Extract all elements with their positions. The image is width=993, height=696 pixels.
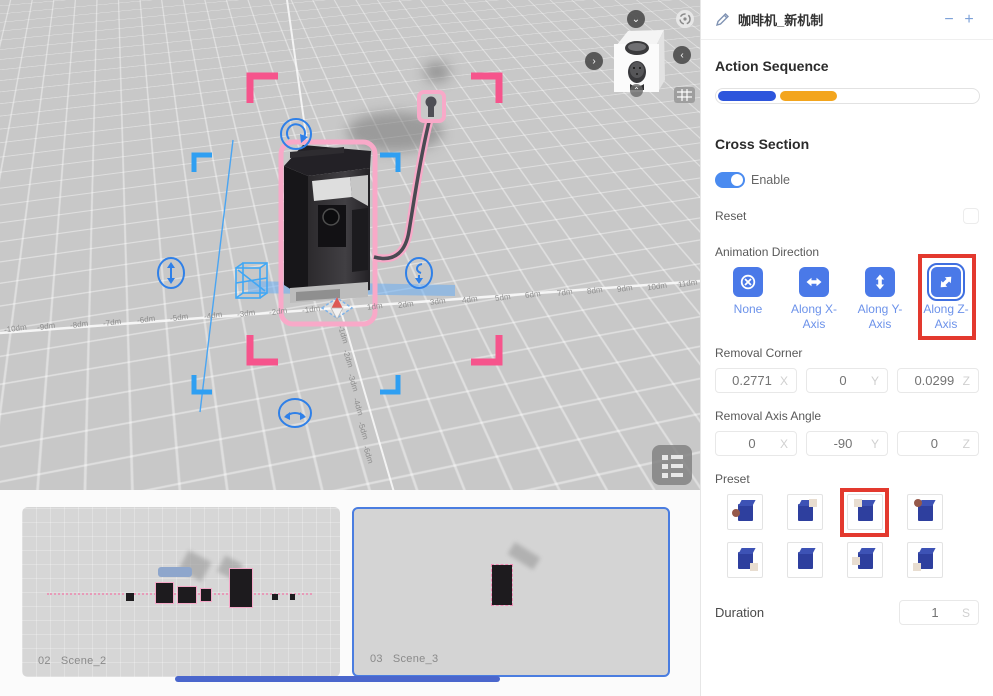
toggle-knob	[731, 174, 743, 186]
duration-label: Duration	[715, 605, 764, 620]
viewport-overlay	[0, 0, 700, 490]
view-reset-icon[interactable]	[676, 10, 694, 28]
orbit-horizontal-gizmo[interactable]	[279, 399, 311, 427]
view-cube[interactable]	[614, 30, 665, 92]
anim-option-along-y[interactable]: Along Y-Axis	[847, 267, 913, 332]
animation-direction-options: None Along X-Axis Along Y-Axis	[715, 267, 979, 332]
preset-option-8[interactable]	[907, 542, 943, 578]
scene-card-label: 03Scene_3	[370, 653, 448, 665]
scene-name: Scene_3	[393, 653, 439, 665]
preset-option-7[interactable]	[847, 542, 883, 578]
preset-grid	[727, 494, 979, 578]
reset-label: Reset	[715, 209, 746, 223]
action-sequence-heading: Action Sequence	[715, 58, 979, 74]
duration-value: 1	[908, 605, 962, 620]
preset-option-1[interactable]	[727, 494, 763, 530]
scene-index: 03	[370, 653, 383, 665]
table-view-icon[interactable]	[674, 87, 695, 103]
diagonal-double-arrow-icon	[931, 267, 961, 297]
horizontal-double-arrow-icon	[799, 267, 829, 297]
axis-rotate-gizmo[interactable]	[406, 258, 432, 288]
scene2-shadow	[178, 550, 211, 582]
edit-pencil-icon[interactable]	[715, 12, 730, 27]
preset-cube-icon	[858, 552, 873, 569]
panel-header: 咖啡机_新机制 − +	[701, 0, 993, 40]
anim-option-none[interactable]: None	[715, 267, 781, 332]
action-sequence-bar[interactable]	[715, 88, 980, 104]
properties-panel: 咖啡机_新机制 − + Action Sequence Cross Sectio…	[700, 0, 993, 696]
value: 0	[906, 436, 963, 451]
scene3-shadow	[508, 542, 541, 570]
vertical-double-arrow-icon	[865, 267, 895, 297]
preset-cube-icon	[738, 504, 753, 521]
left-column: -10dm -9dm -8dm -7dm -6dm -5dm -4dm -3dm…	[0, 0, 700, 696]
preset-cube-icon	[798, 552, 813, 569]
scene2-object	[126, 593, 134, 601]
cross-section-heading: Cross Section	[715, 136, 979, 152]
scene3-object	[492, 565, 512, 605]
anim-option-along-z[interactable]: Along Z-Axis	[913, 267, 979, 332]
axis-letter: Z	[963, 437, 970, 451]
coffee-machine-model[interactable]	[284, 145, 371, 303]
value: 0	[724, 436, 780, 451]
preset-label: Preset	[715, 472, 979, 486]
preset-option-3[interactable]	[847, 494, 883, 530]
removal-corner-z-input[interactable]: 0.0299 Z	[897, 368, 979, 393]
anim-option-label: Along Y-Axis	[851, 302, 909, 332]
viewcube-up-button[interactable]: ⌄	[627, 10, 645, 28]
cross-section-guide-line	[200, 140, 233, 412]
app-window: -10dm -9dm -8dm -7dm -6dm -5dm -4dm -3dm…	[0, 0, 993, 696]
scene2-object	[156, 583, 173, 603]
removal-angle-z-input[interactable]: 0 Z	[897, 431, 979, 456]
removal-axis-angle-inputs: 0 X -90 Y 0 Z	[715, 431, 979, 456]
duration-unit: S	[962, 606, 970, 620]
blue-bracket-top-right	[380, 155, 398, 172]
value: 0	[815, 373, 871, 388]
preset-option-6[interactable]	[787, 542, 823, 578]
removal-corner-label: Removal Corner	[715, 346, 979, 360]
scene-name: Scene_2	[61, 655, 107, 667]
panel-title: 咖啡机_新机制	[738, 10, 939, 29]
preset-cube-icon	[918, 552, 933, 569]
duration-row: Duration 1 S	[715, 600, 979, 625]
scene2-object	[178, 587, 196, 603]
scene-strip-scrollbar[interactable]	[175, 676, 500, 682]
axis-letter: Y	[871, 374, 879, 388]
pink-bracket-bottom-right	[471, 335, 499, 362]
value: 0.0299	[906, 373, 963, 388]
preset-option-5[interactable]	[727, 542, 763, 578]
blue-bracket-bottom-right	[380, 375, 398, 392]
pink-bracket-top-left	[250, 76, 278, 103]
action-segment-orange[interactable]	[780, 91, 837, 101]
preset-option-2[interactable]	[787, 494, 823, 530]
3d-viewport[interactable]: -10dm -9dm -8dm -7dm -6dm -5dm -4dm -3dm…	[0, 0, 700, 490]
preset-cube-icon	[858, 504, 873, 521]
anim-option-along-x[interactable]: Along X-Axis	[781, 267, 847, 332]
preset-cube-icon	[918, 504, 933, 521]
scene2-object	[272, 594, 278, 600]
blue-bracket-top-left	[194, 155, 212, 172]
removal-corner-inputs: 0.2771 X 0 Y 0.0299 Z	[715, 368, 979, 393]
expand-button[interactable]: +	[959, 11, 979, 29]
anim-option-label: None	[719, 302, 777, 317]
scene2-object	[230, 569, 252, 607]
scene-card-2[interactable]: 02Scene_2	[22, 507, 340, 677]
axis-letter: X	[780, 437, 788, 451]
move-vertical-gizmo[interactable]	[158, 258, 184, 288]
axis-letter: Y	[871, 437, 879, 451]
scene-index: 02	[38, 655, 51, 667]
cross-section-cube-handle[interactable]	[236, 263, 267, 298]
removal-corner-y-input[interactable]: 0 Y	[806, 368, 888, 393]
scene2-tooltip	[158, 567, 192, 577]
axis-letter: X	[780, 374, 788, 388]
plug-shadow	[424, 62, 450, 82]
value: -90	[815, 436, 871, 451]
removal-axis-angle-label: Removal Axis Angle	[715, 409, 979, 423]
reset-checkbox[interactable]	[963, 208, 979, 224]
scene-card-label: 02Scene_2	[38, 655, 116, 667]
duration-input[interactable]: 1 S	[899, 600, 979, 625]
cross-circle-icon	[733, 267, 763, 297]
pink-bracket-bottom-left	[250, 335, 278, 362]
scene-list-button[interactable]	[652, 445, 692, 485]
enable-toggle[interactable]	[715, 172, 745, 188]
collapse-button[interactable]: −	[939, 11, 959, 29]
scene-card-3[interactable]: 03Scene_3	[352, 507, 670, 677]
anim-option-label: Along X-Axis	[785, 302, 843, 332]
enable-label: Enable	[751, 173, 790, 187]
anim-option-label: Along Z-Axis	[917, 302, 975, 332]
removal-corner-x-input[interactable]: 0.2771 X	[715, 368, 797, 393]
removal-angle-y-input[interactable]: -90 Y	[806, 431, 888, 456]
preset-option-4[interactable]	[907, 494, 943, 530]
viewcube-down-button[interactable]: ⌃	[630, 84, 643, 97]
axis-letter: Z	[963, 374, 970, 388]
value: 0.2771	[724, 373, 780, 388]
viewcube-left-button[interactable]: ›	[585, 52, 603, 70]
animation-direction-label: Animation Direction	[715, 245, 979, 259]
removal-angle-x-input[interactable]: 0 X	[715, 431, 797, 456]
viewcube-right-button[interactable]: ‹	[673, 46, 691, 64]
pink-bracket-top-right	[471, 76, 499, 103]
scene-strip: 02Scene_2 03Scene_3	[0, 490, 700, 696]
preset-cube-icon	[798, 504, 813, 521]
scene2-object	[201, 589, 211, 601]
preset-cube-icon	[738, 552, 753, 569]
scene2-object	[290, 594, 295, 600]
origin-compass	[322, 297, 352, 319]
action-segment-blue[interactable]	[718, 91, 776, 101]
